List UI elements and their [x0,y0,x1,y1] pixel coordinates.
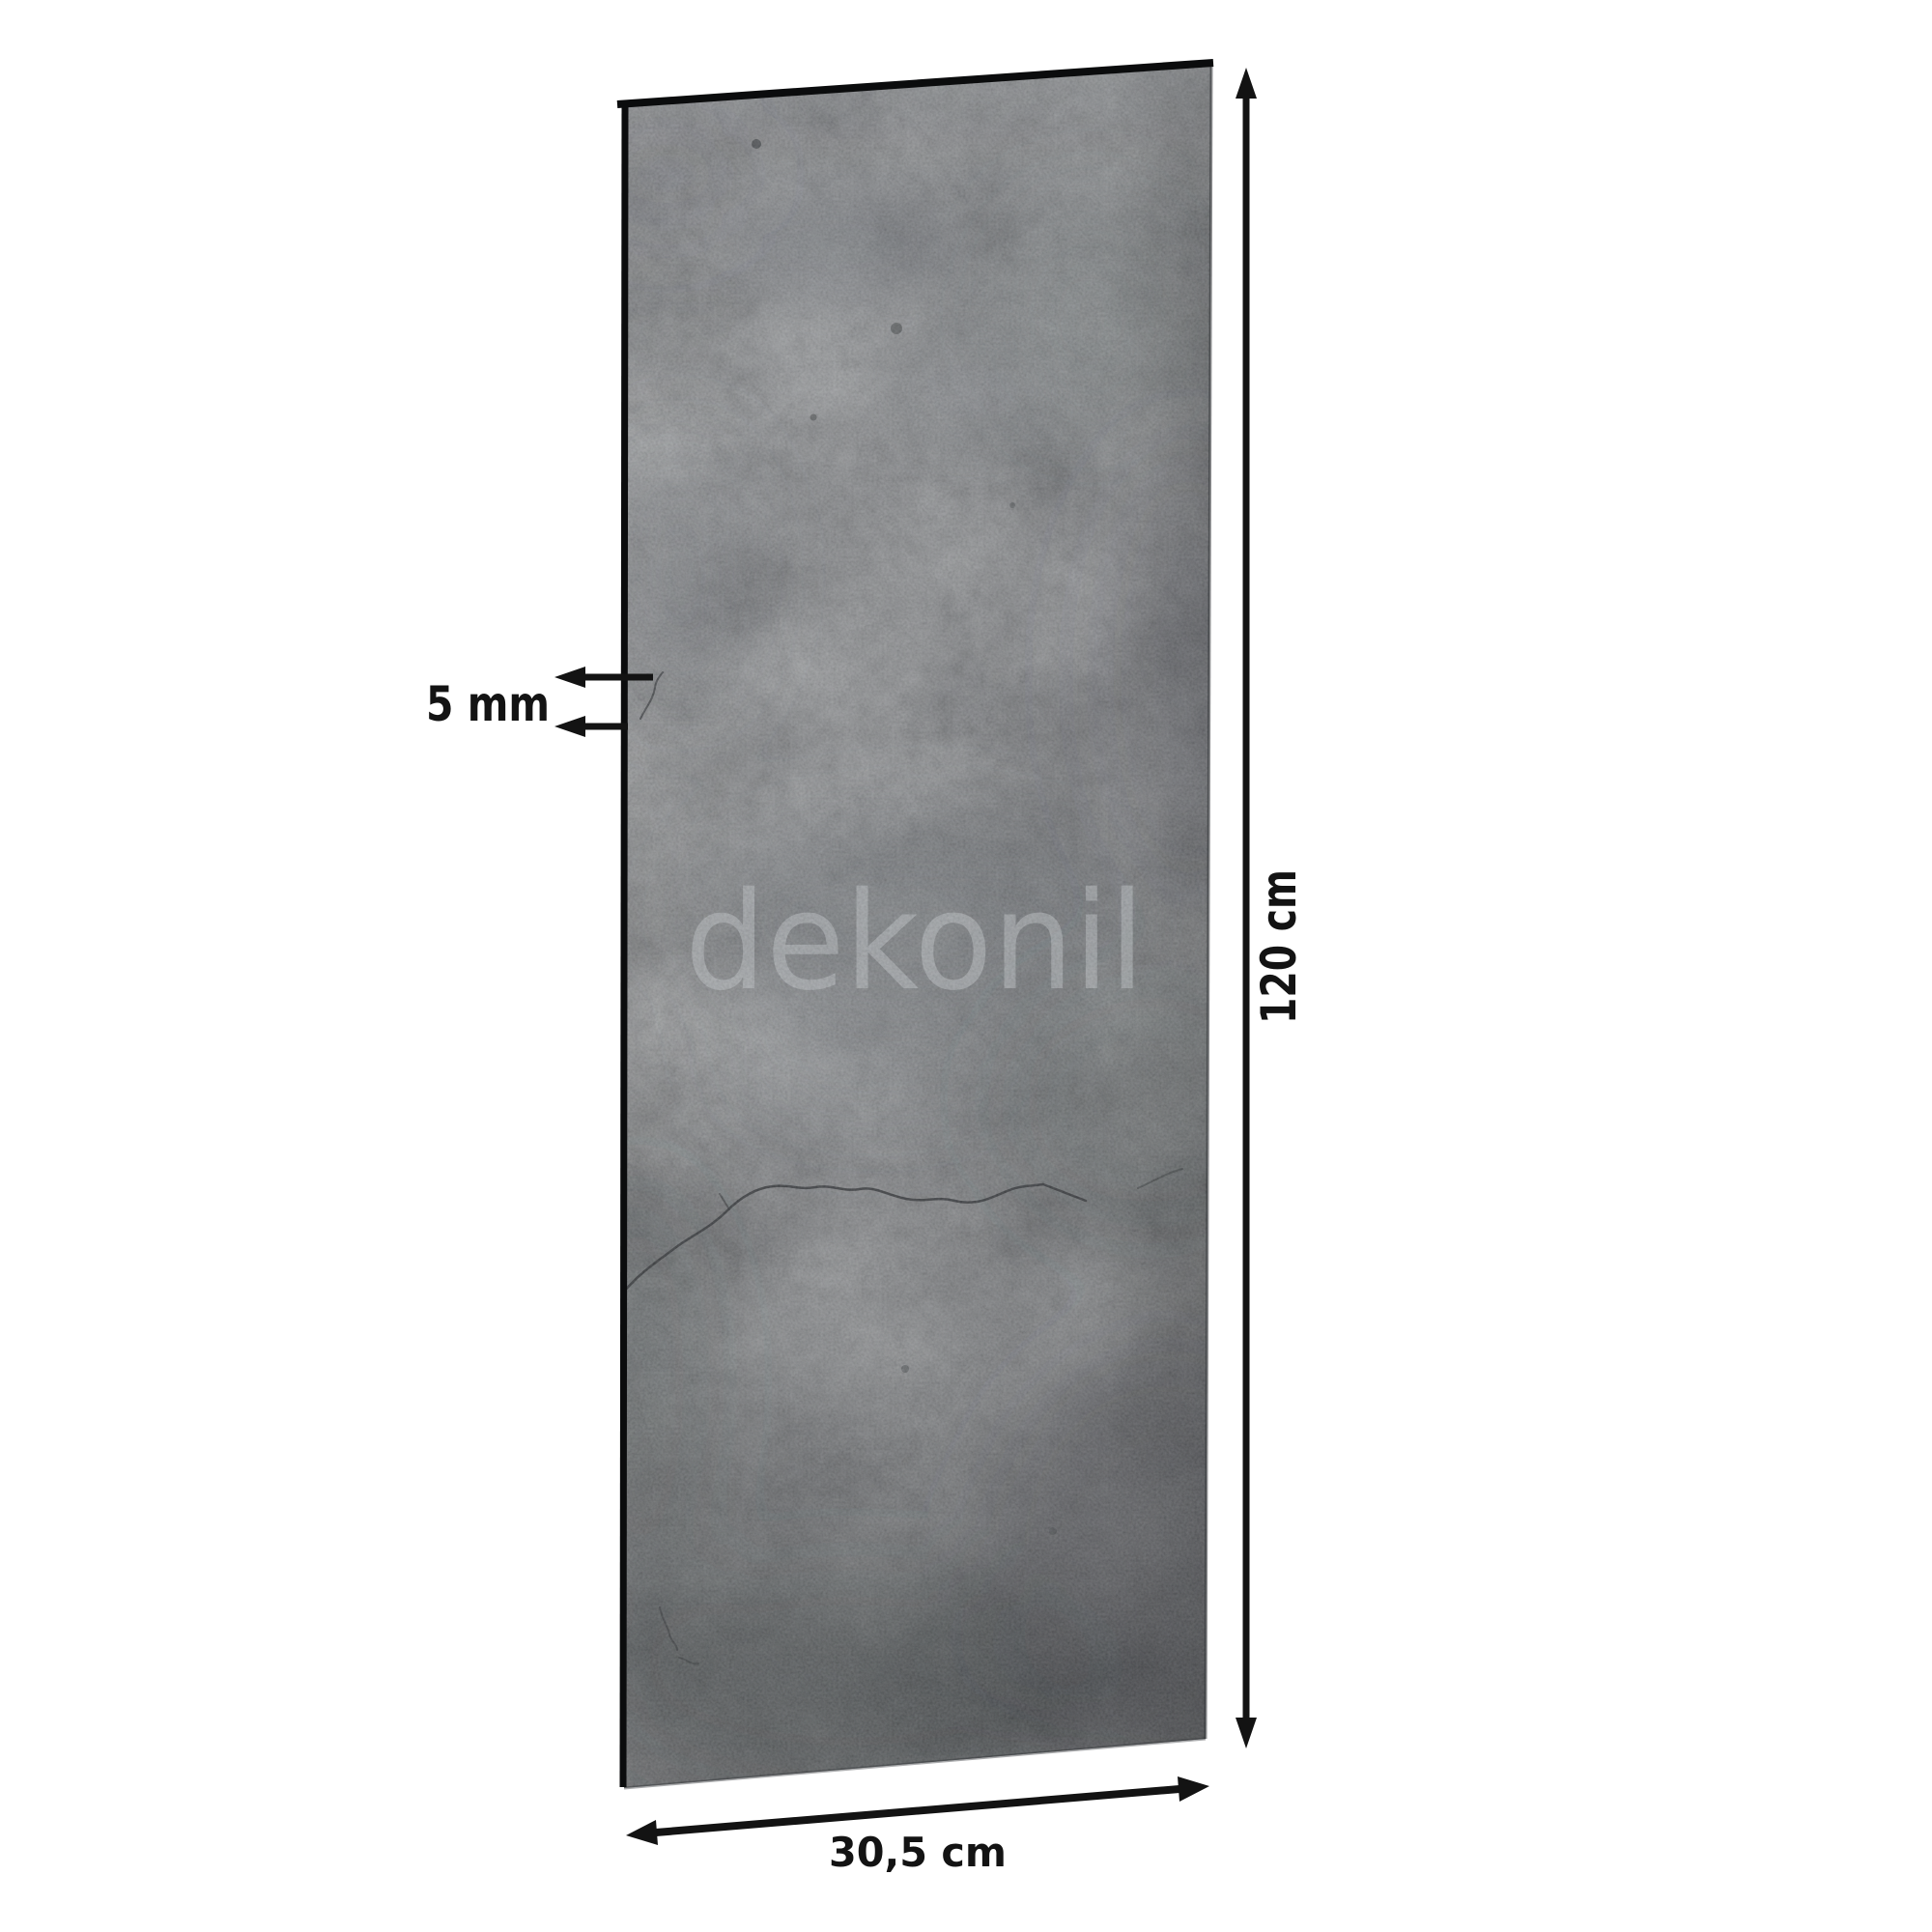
thickness-dimension: 5 mm [426,667,653,737]
width-dimension-label: 30,5 cm [829,1829,1007,1876]
height-dimension: 120 cm [1236,68,1307,1748]
width-dimension: 30,5 cm [626,1776,1209,1876]
panel: dekonil [551,48,1362,1806]
panel-left-edge [623,101,625,1787]
thickness-dimension-label: 5 mm [426,676,550,732]
arrowhead-left-bottom-icon [554,716,585,737]
arrowhead-down-icon [1236,1718,1257,1748]
diagram-canvas: dekonil 5 mm 120 cm 30,5 cm [0,0,1932,1932]
arrowhead-east-icon [1178,1776,1209,1802]
width-dimension-line [656,1789,1179,1833]
panel-texture-grain [580,48,1256,1806]
height-dimension-label: 120 cm [1251,869,1307,1024]
arrowhead-left-top-icon [554,667,585,688]
arrowhead-up-icon [1236,68,1257,99]
product-dimension-diagram: dekonil 5 mm 120 cm 30,5 cm [0,0,1932,1932]
arrowhead-west-icon [626,1820,658,1845]
